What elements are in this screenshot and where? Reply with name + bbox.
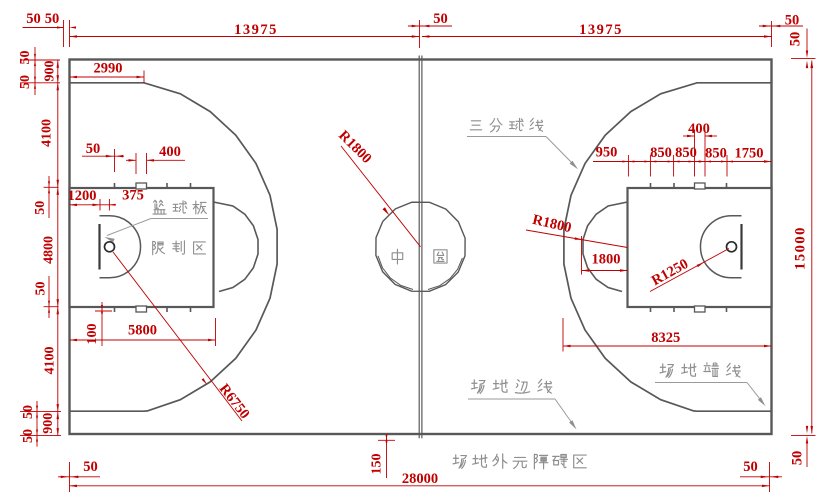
- svg-text:28000: 28000: [402, 471, 438, 487]
- svg-text:1800: 1800: [592, 252, 621, 268]
- svg-text:13975: 13975: [579, 22, 623, 38]
- svg-text:900: 900: [41, 413, 56, 434]
- svg-text:4800: 4800: [42, 236, 57, 264]
- svg-text:50: 50: [18, 75, 33, 89]
- svg-text:850: 850: [650, 145, 672, 161]
- svg-text:50: 50: [33, 201, 48, 215]
- svg-text:50: 50: [26, 11, 41, 27]
- svg-text:4100: 4100: [43, 347, 58, 375]
- svg-text:850: 850: [675, 145, 697, 161]
- svg-text:50: 50: [743, 459, 758, 475]
- svg-text:150: 150: [370, 454, 385, 475]
- svg-text:15000: 15000: [793, 226, 809, 270]
- svg-text:8325: 8325: [651, 330, 680, 346]
- svg-text:50: 50: [788, 32, 804, 47]
- svg-text:13975: 13975: [234, 22, 278, 38]
- svg-text:100: 100: [85, 324, 100, 345]
- svg-text:400: 400: [688, 121, 710, 137]
- svg-text:R1800: R1800: [335, 128, 374, 167]
- svg-text:900: 900: [42, 61, 57, 82]
- svg-text:50: 50: [34, 282, 49, 296]
- svg-text:R6750: R6750: [216, 381, 253, 422]
- svg-text:50: 50: [86, 141, 101, 157]
- svg-text:50: 50: [83, 459, 98, 475]
- svg-text:1750: 1750: [735, 146, 764, 162]
- svg-text:50: 50: [18, 51, 33, 65]
- svg-text:950: 950: [596, 145, 618, 161]
- svg-text:2990: 2990: [94, 61, 123, 77]
- svg-text:4100: 4100: [40, 119, 55, 147]
- svg-text:1200: 1200: [68, 188, 97, 204]
- svg-text:50: 50: [433, 11, 448, 27]
- svg-text:850: 850: [705, 146, 727, 162]
- svg-text:375: 375: [122, 188, 144, 204]
- svg-text:400: 400: [159, 144, 181, 160]
- svg-text:50: 50: [790, 451, 806, 466]
- svg-text:5800: 5800: [128, 323, 157, 339]
- svg-text:50: 50: [45, 11, 60, 27]
